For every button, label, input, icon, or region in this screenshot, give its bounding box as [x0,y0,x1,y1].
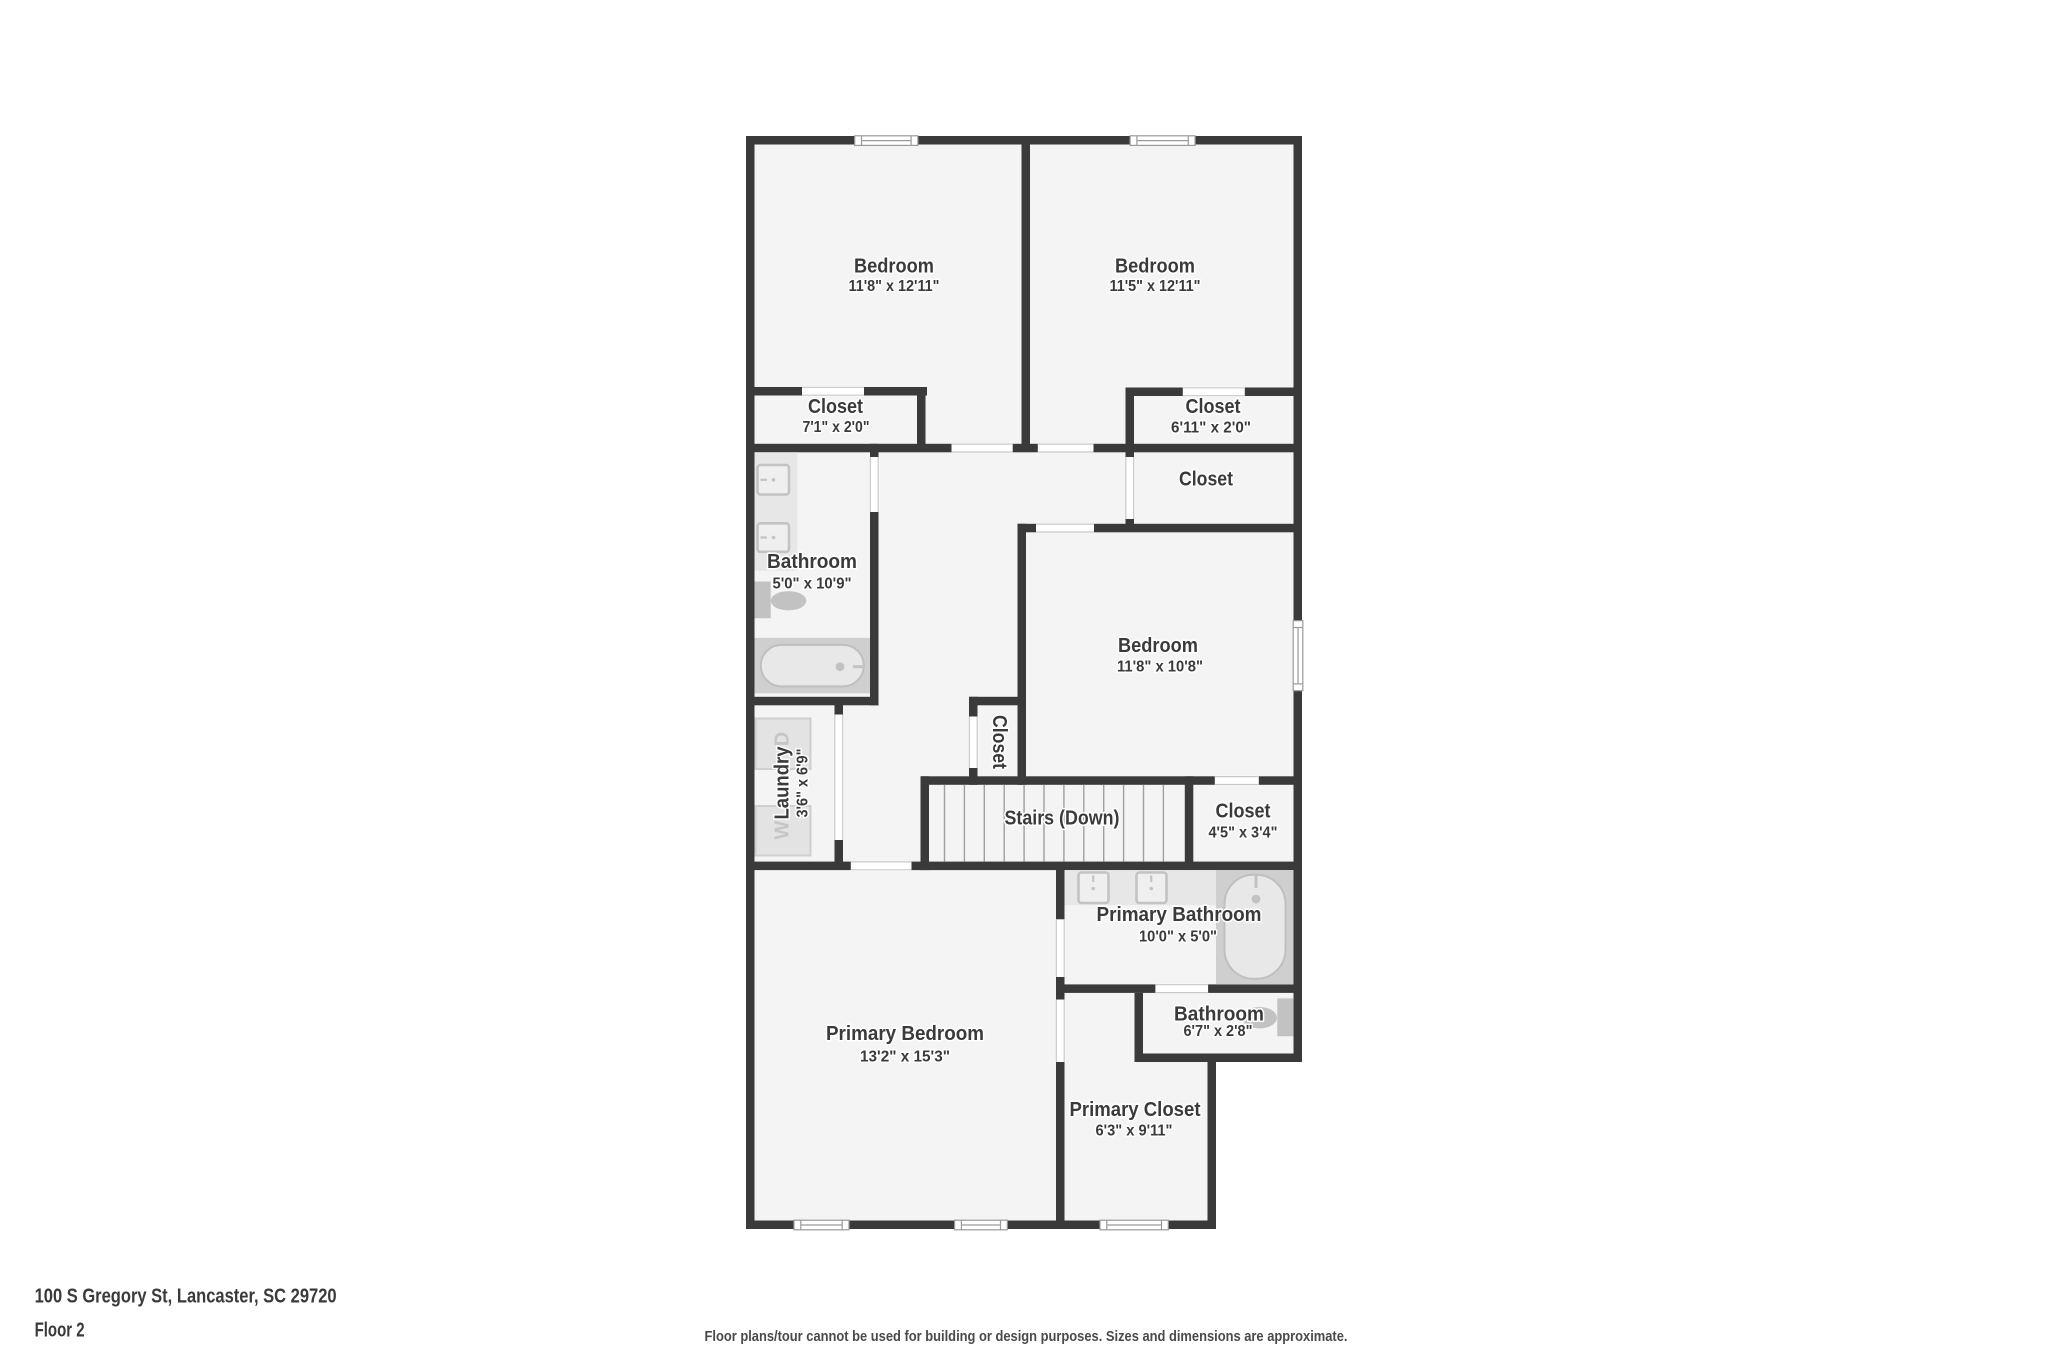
svg-text:11'5" x 12'11": 11'5" x 12'11" [1110,278,1201,295]
svg-text:10'0" x 5'0": 10'0" x 5'0" [1139,928,1217,945]
svg-text:3'6" x 6'9": 3'6" x 6'9" [794,749,811,818]
svg-text:11'8" x 12'11": 11'8" x 12'11" [849,278,940,295]
svg-text:7'1" x 2'0": 7'1" x 2'0" [803,419,870,436]
svg-text:Bathroom: Bathroom [767,551,857,573]
svg-text:11'8" x 10'8": 11'8" x 10'8" [1117,658,1203,675]
svg-text:Bedroom: Bedroom [1115,256,1195,278]
svg-text:Closet: Closet [988,715,1010,769]
svg-text:D: D [772,732,794,746]
svg-text:6'11" x 2'0": 6'11" x 2'0" [1171,419,1251,436]
svg-text:5'0" x 10'9": 5'0" x 10'9" [773,575,852,592]
svg-text:4'5" x 3'4": 4'5" x 3'4" [1209,824,1278,841]
svg-text:Laundry: Laundry [772,746,794,820]
svg-text:Bedroom: Bedroom [1118,635,1198,657]
svg-text:W: W [772,820,794,839]
svg-text:Closet: Closet [1179,469,1233,491]
svg-text:6'7" x 2'8": 6'7" x 2'8" [1184,1023,1253,1040]
svg-text:Stairs (Down): Stairs (Down) [1005,808,1120,830]
svg-text:Floor 2: Floor 2 [35,1320,85,1342]
svg-text:Closet: Closet [808,396,863,418]
svg-text:Primary Bathroom: Primary Bathroom [1097,904,1262,926]
svg-text:Floor plans/tour cannot be use: Floor plans/tour cannot be used for buil… [705,1328,1348,1345]
svg-text:Bedroom: Bedroom [854,256,934,278]
svg-text:100 S Gregory St, Lancaster, S: 100 S Gregory St, Lancaster, SC 29720 [35,1286,337,1308]
svg-text:6'3" x 9'11": 6'3" x 9'11" [1096,1122,1173,1139]
svg-text:Primary Bedroom: Primary Bedroom [826,1023,984,1045]
svg-text:Closet: Closet [1186,396,1241,418]
svg-text:13'2" x 15'3": 13'2" x 15'3" [860,1048,950,1065]
svg-text:Closet: Closet [1216,801,1271,823]
svg-text:Primary Closet: Primary Closet [1070,1099,1201,1121]
